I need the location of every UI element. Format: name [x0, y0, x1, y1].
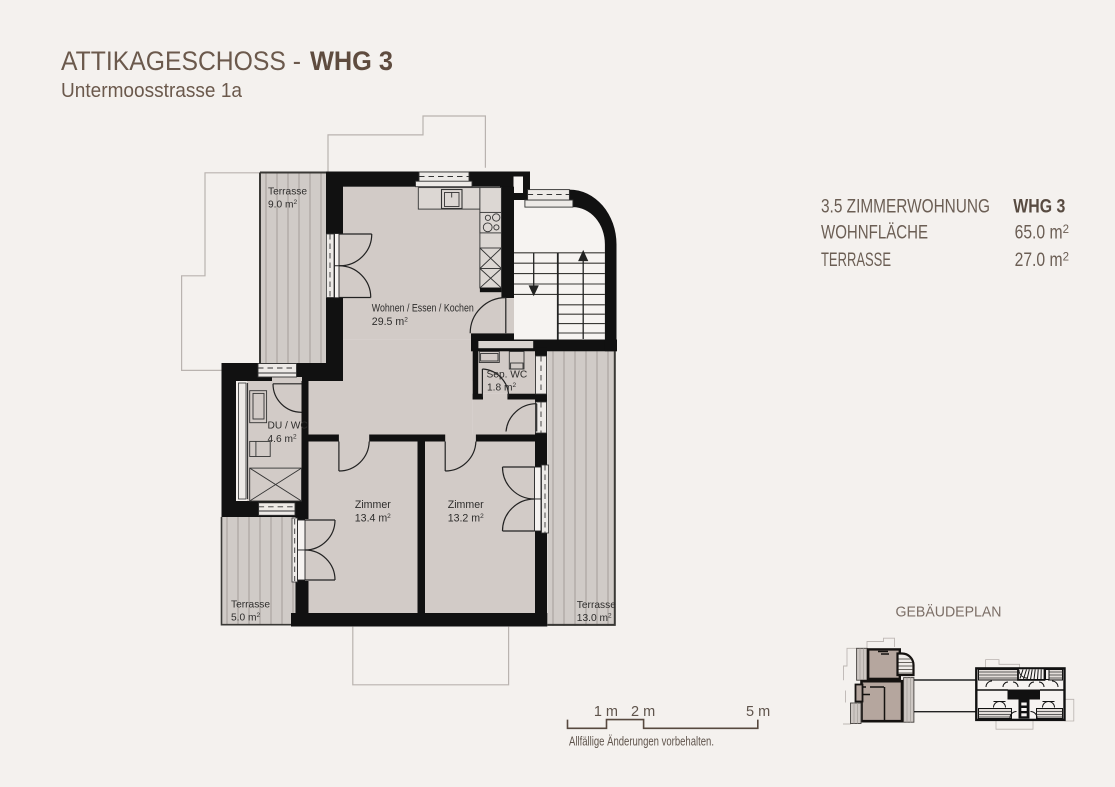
svg-text:1.8 m2: 1.8 m2	[487, 382, 516, 394]
svg-text:13.0 m2: 13.0 m2	[577, 613, 612, 625]
svg-text:ATTIKAGESCHOSS -: ATTIKAGESCHOSS -	[61, 46, 301, 76]
svg-text:3.5 ZIMMERWOHNUNG: 3.5 ZIMMERWOHNUNG	[821, 197, 990, 218]
svg-text:TERRASSE: TERRASSE	[821, 250, 891, 271]
svg-text:Untermoosstrasse 1a: Untermoosstrasse 1a	[61, 80, 243, 102]
svg-text:4.6 m2: 4.6 m2	[268, 434, 297, 446]
svg-text:WHG 3: WHG 3	[1013, 197, 1065, 218]
svg-text:Allfällige Änderungen vorbehal: Allfällige Änderungen vorbehalten.	[569, 735, 714, 749]
svg-text:2 m: 2 m	[631, 704, 655, 720]
svg-text:GEBÄUDEPLAN: GEBÄUDEPLAN	[896, 604, 1002, 621]
svg-text:Wohnen / Essen / Kochen: Wohnen / Essen / Kochen	[372, 303, 474, 315]
svg-text:27.0 m2: 27.0 m2	[1015, 250, 1069, 271]
svg-text:29.5 m2: 29.5 m2	[372, 316, 408, 328]
svg-text:13.2 m2: 13.2 m2	[448, 513, 484, 525]
svg-text:65.0 m2: 65.0 m2	[1015, 223, 1069, 244]
svg-text:DU / WC: DU / WC	[268, 421, 308, 432]
svg-text:Sep. WC: Sep. WC	[487, 370, 528, 381]
svg-text:Terrasse: Terrasse	[577, 600, 616, 611]
svg-text:5 m: 5 m	[746, 704, 770, 720]
svg-text:Zimmer: Zimmer	[448, 499, 484, 511]
svg-text:13.4 m2: 13.4 m2	[355, 513, 391, 525]
svg-text:5.0 m2: 5.0 m2	[231, 612, 260, 624]
svg-text:WOHNFLÄCHE: WOHNFLÄCHE	[821, 223, 928, 244]
svg-text:Zimmer: Zimmer	[355, 499, 391, 511]
svg-text:WHG 3: WHG 3	[310, 46, 393, 76]
svg-text:Terrasse: Terrasse	[231, 600, 270, 611]
svg-text:9.0 m2: 9.0 m2	[268, 199, 297, 211]
svg-text:1 m: 1 m	[594, 704, 618, 720]
svg-text:Terrasse: Terrasse	[268, 187, 307, 198]
